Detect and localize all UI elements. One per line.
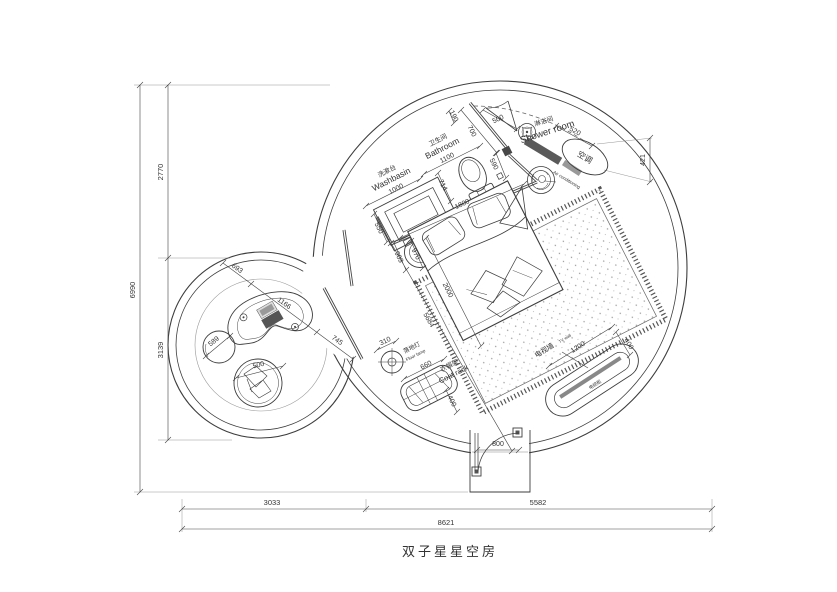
floorplan-canvas: 空调 电视柜 [0,0,837,592]
dim-toilet: 714 [437,179,449,193]
dim-ac-width: 520 [568,126,582,138]
floorplan-page: 空调 电视柜 [0,0,837,592]
ac-label-cn: 空调 [576,149,595,166]
dim-height-top: 2770 [156,164,165,181]
floor-lamp-icon [378,348,406,376]
floor-lamp-label: 落地灯 Floor lamp [400,339,426,362]
dim-width-left: 3033 [264,498,281,507]
dim-entry-door: 800 [492,441,504,448]
dim-bath-wall: 700 [466,125,478,139]
bathroom-label: 卫生间 Bathroom 1100 [419,127,465,170]
fan-coil-icon [528,167,555,194]
washbasin-label: 洗漱台 Washbasin 1000 [366,157,417,202]
dim-column: 590 [488,158,500,172]
dim-desk-b: 1166 [276,297,292,312]
dim-lamp: 310 [379,336,393,347]
dim-coat-depth: 400 [446,395,458,409]
dim-top-gap: 190 [448,110,460,124]
dim-ac-depth: 421 [640,154,647,166]
dim-room-diag: 5684 [421,312,435,329]
dim-width-right: 5582 [530,498,547,507]
dim-overall-height: 6990 [128,282,137,299]
dim-height-mid: 3139 [156,342,165,359]
shower-bench [524,137,582,176]
drawing-title: 双子星星空房 [402,544,498,559]
column-marker [497,173,504,180]
dim-pouf: 589 [207,335,221,348]
dim-basin-side: 550 [373,222,385,236]
dim-overall-width: 8621 [438,518,455,527]
dim-beanbag: 500 [252,361,265,371]
